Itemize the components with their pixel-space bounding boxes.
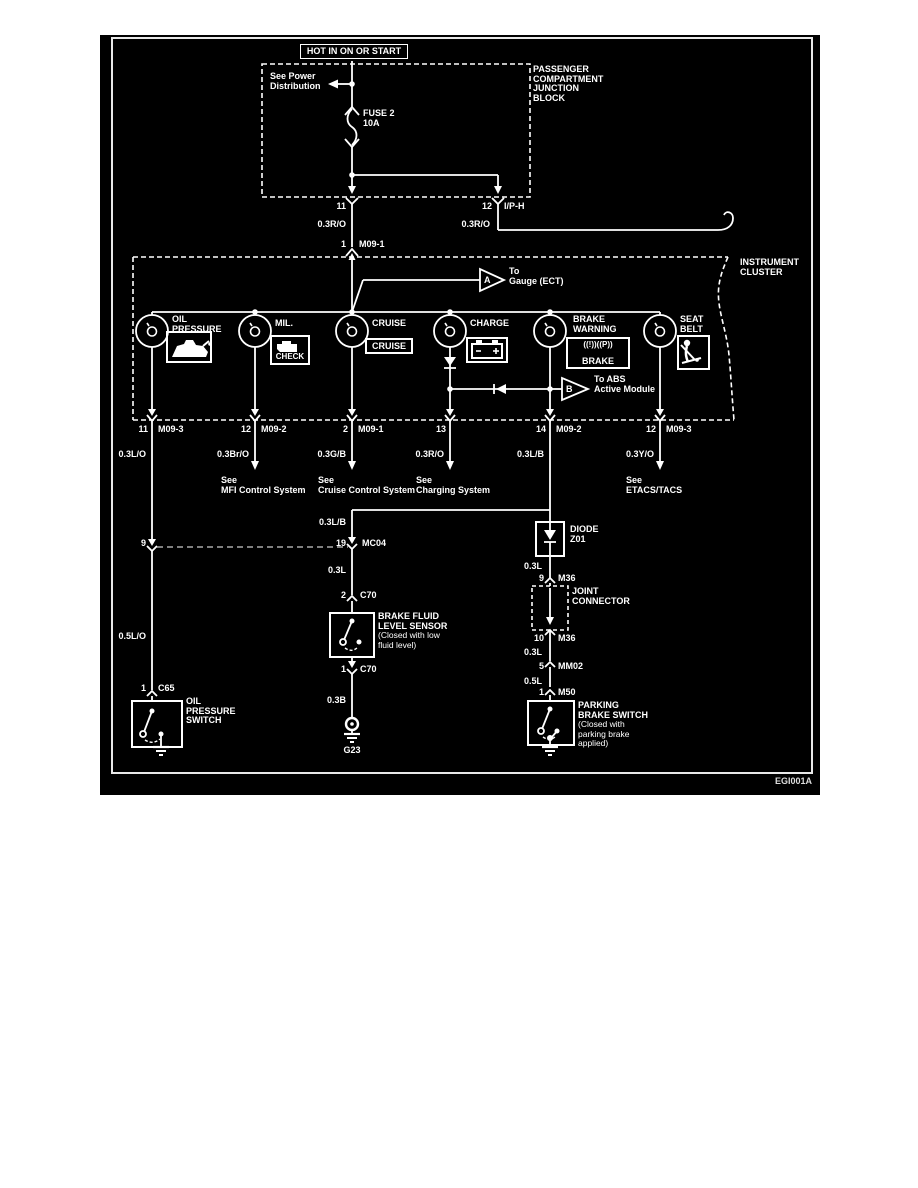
parking-brake-switch-label: PARKING BRAKE SWITCH (Closed with parkin… (578, 701, 650, 749)
battery-icon-box (466, 337, 508, 363)
pin-11: 11 (316, 201, 346, 211)
row2-pin-1: 12 (219, 424, 251, 434)
pin-1-c65: 1 (122, 683, 146, 693)
row2-pin-5: 12 (624, 424, 656, 434)
oil-pressure-switch-box (132, 701, 182, 747)
see-target: Cruise Control System (318, 485, 415, 495)
brake-fluid-sensor-name: BRAKE FLUID LEVEL SENSOR (378, 611, 447, 631)
row2-wire-5: 0.3Y/O (606, 449, 654, 459)
connector-m09-1: M09-1 (359, 239, 385, 249)
pin-1-m50: 1 (520, 687, 544, 697)
connector-c65: C65 (158, 683, 175, 693)
row2-wire-2: 0.3G/B (298, 449, 346, 459)
wire-03ro-left: 0.3R/O (300, 219, 346, 229)
brake-warning-icon-text: BRAKE (568, 356, 628, 366)
lamp-mil (239, 312, 271, 409)
lamp-oil-pressure (136, 312, 168, 409)
row2-conn-2: M09-1 (358, 424, 384, 434)
fuse-name: FUSE 2 (363, 108, 395, 118)
lamp-seat-belt (644, 312, 676, 409)
row2-conn-4: M09-2 (556, 424, 582, 434)
brake-warning-icon-symbols: ((!))((P)) (568, 340, 628, 350)
see-target: ETACS/TACS (626, 485, 682, 495)
triangle-a-target: Gauge (ECT) (509, 276, 564, 286)
gauge-ect-branch (352, 269, 504, 312)
connector-mm02: MM02 (558, 661, 583, 671)
joint-connector-label: JOINT CONNECTOR (572, 587, 630, 606)
row2-pin-3: 13 (414, 424, 446, 434)
instrument-cluster-label: INSTRUMENT CLUSTER (740, 258, 820, 277)
pin-2-c70: 2 (322, 590, 346, 600)
pin-1: 1 (320, 239, 346, 249)
brake-warning-icon-box: ((!))((P)) BRAKE (566, 337, 630, 369)
see-word: See (626, 475, 682, 485)
junction-block-label: PASSENGER COMPARTMENT JUNCTION BLOCK (533, 65, 603, 103)
oil-can-icon-box (166, 331, 212, 363)
ground-g23-label: G23 (332, 745, 372, 755)
parking-brake-switch-name: PARKING BRAKE SWITCH (578, 700, 648, 720)
wire-05l: 0.5L (510, 676, 542, 686)
triangle-a-letter: A (484, 275, 491, 285)
pin-9-left: 9 (124, 538, 146, 548)
row2-pin-4: 14 (514, 424, 546, 434)
connector-iph: I/P-H (504, 201, 525, 211)
lamp-name-mil: MIL. (275, 318, 293, 328)
see-ref-mfi: SeeMFI Control System (221, 475, 306, 495)
see-power-distribution-label: See Power Distribution (270, 72, 332, 91)
wire-03l-m36: 0.3L (510, 561, 542, 571)
see-word: See (416, 475, 490, 485)
connector-m50: M50 (558, 687, 576, 697)
see-target: Charging System (416, 485, 490, 495)
pin-9-m36: 9 (520, 573, 544, 583)
pin-19: 19 (322, 538, 346, 548)
row2-pin-2: 2 (316, 424, 348, 434)
fuse-rating: 10A (363, 118, 380, 128)
diagram-frame (112, 38, 812, 773)
triangle-a-to: To (509, 266, 519, 276)
row2-wire-0: 0.3L/O (100, 449, 146, 459)
power-feed-lines (262, 61, 733, 312)
pin-10-m36: 10 (516, 633, 544, 643)
wiring-diagram-panel: HOT IN ON OR START See Power Distributio… (100, 35, 820, 795)
see-ref-etacs: SeeETACS/TACS (626, 475, 682, 495)
connector-mc04: MC04 (362, 538, 386, 548)
row2-conn-1: M09-2 (261, 424, 287, 434)
connector-c70-lower: C70 (360, 664, 377, 674)
seat-belt-icon-box (677, 335, 710, 370)
lamp-cruise (336, 312, 368, 409)
row2-conn-0: M09-3 (158, 424, 184, 434)
wire-05lo: 0.5L/O (102, 631, 146, 641)
wire-continuation-curl (718, 212, 733, 230)
triangle-b-letter: B (566, 384, 573, 394)
cruise-icon-text: CRUISE (367, 341, 411, 351)
connector-m36-lower: M36 (558, 633, 576, 643)
oil-pressure-switch-label: OIL PRESSURE SWITCH (186, 697, 250, 726)
row2-wire-1: 0.3Br/O (201, 449, 249, 459)
see-ref-cruise: SeeCruise Control System (318, 475, 415, 495)
diode-id: Z01 (570, 534, 586, 544)
hot-in-on-or-start-label: HOT IN ON OR START (300, 44, 408, 59)
pin-12: 12 (462, 201, 492, 211)
cruise-icon-box: CRUISE (365, 338, 413, 354)
lamp-name-charge: CHARGE (470, 318, 509, 328)
check-engine-icon-box: CHECK (270, 335, 310, 365)
wiring-diagram-lines (100, 35, 820, 795)
brake-fluid-sensor-note: (Closed with low fluid level) (378, 631, 448, 650)
see-word: See (221, 475, 306, 485)
row2-wire-4: 0.3L/B (496, 449, 544, 459)
brake-fluid-sensor-label: BRAKE FLUID LEVEL SENSOR (Closed with lo… (378, 612, 448, 650)
wire-03b: 0.3B (314, 695, 346, 705)
see-ref-charging: SeeCharging System (416, 475, 490, 495)
lamp-name-seat-belt: SEAT BELT (680, 315, 718, 334)
diode-name: DIODE (570, 524, 599, 534)
check-engine-icon-text: CHECK (272, 352, 308, 362)
wire-03l-c70: 0.3L (314, 565, 346, 575)
lamp-name-brake-warning: BRAKE WARNING (573, 315, 625, 334)
see-word: See (318, 475, 415, 485)
wire-03lb-mc04: 0.3L/B (300, 517, 346, 527)
pin-5-mm02: 5 (520, 661, 544, 671)
parking-brake-switch-note: (Closed with parking brake applied) (578, 720, 650, 749)
diagram-code: EGI001A (720, 776, 812, 786)
row2-conn-5: M09-3 (666, 424, 692, 434)
row2-wire-3: 0.3R/O (396, 449, 444, 459)
see-target: MFI Control System (221, 485, 306, 495)
fuse-symbol (345, 107, 359, 147)
instrument-cluster-box (133, 257, 734, 420)
connector-c70: C70 (360, 590, 377, 600)
wire-03l-mm02: 0.3L (510, 647, 542, 657)
lamp-charge (434, 312, 466, 409)
triangle-b-line1: To ABS (594, 374, 626, 384)
row2-pin-0: 11 (116, 424, 148, 434)
connector-m36: M36 (558, 573, 576, 583)
pin-1-c70: 1 (322, 664, 346, 674)
lamp-name-cruise: CRUISE (372, 318, 406, 328)
triangle-b-line2: Active Module (594, 384, 655, 394)
wire-03ro-right: 0.3R/O (444, 219, 490, 229)
